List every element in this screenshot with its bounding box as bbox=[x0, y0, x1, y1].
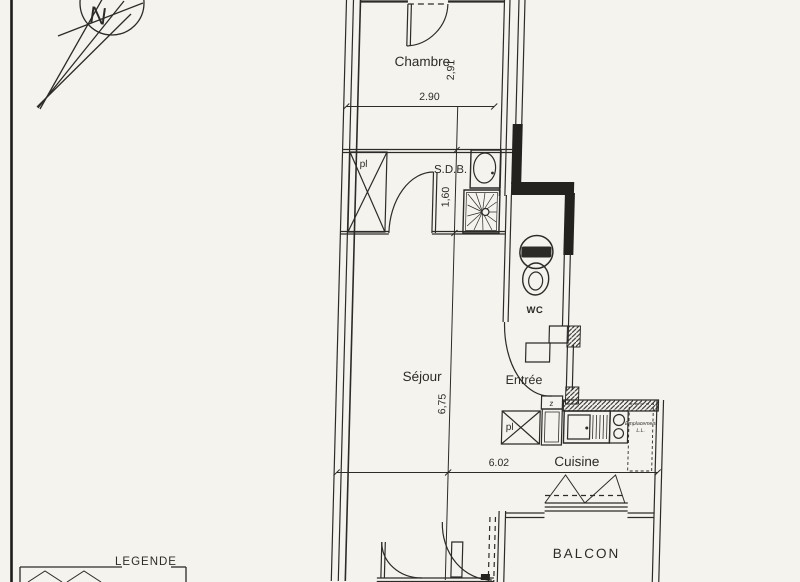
paper-background bbox=[0, 0, 800, 582]
room-label-wc: WC bbox=[526, 305, 543, 316]
room-label-sdb: S.D.B. bbox=[434, 164, 468, 176]
washer-note-line2: L.L. bbox=[636, 428, 645, 434]
room-label-entree: Entrée bbox=[505, 373, 542, 387]
scanned-floor-plan-page: N LEGENDE bbox=[0, 0, 800, 582]
dim-cuisine: 6.02 bbox=[489, 457, 510, 469]
room-label-sejour: Séjour bbox=[402, 369, 442, 384]
room-label-balcon: BALCON bbox=[553, 546, 621, 561]
washer-note-line1: Emplacement bbox=[625, 421, 657, 427]
room-label-cuisine: Cuisine bbox=[554, 454, 599, 469]
dim-sejour: 6,75 bbox=[436, 394, 449, 415]
dim-chambre-width: 2.90 bbox=[419, 91, 440, 103]
legend-title: LEGENDE bbox=[115, 556, 177, 568]
dim-chambre-depth: 2,91 bbox=[445, 60, 458, 81]
wall-kitchen-hatched bbox=[563, 400, 658, 411]
threshold-mark bbox=[481, 574, 490, 580]
floor-plan: N LEGENDE bbox=[0, 0, 800, 582]
dim-sdb: 1,60 bbox=[440, 187, 453, 208]
room-label-chambre: Chambre bbox=[394, 54, 450, 69]
closet-label: pl bbox=[360, 159, 368, 170]
closet-label: pl bbox=[506, 422, 514, 433]
duct-label: z bbox=[549, 399, 553, 408]
